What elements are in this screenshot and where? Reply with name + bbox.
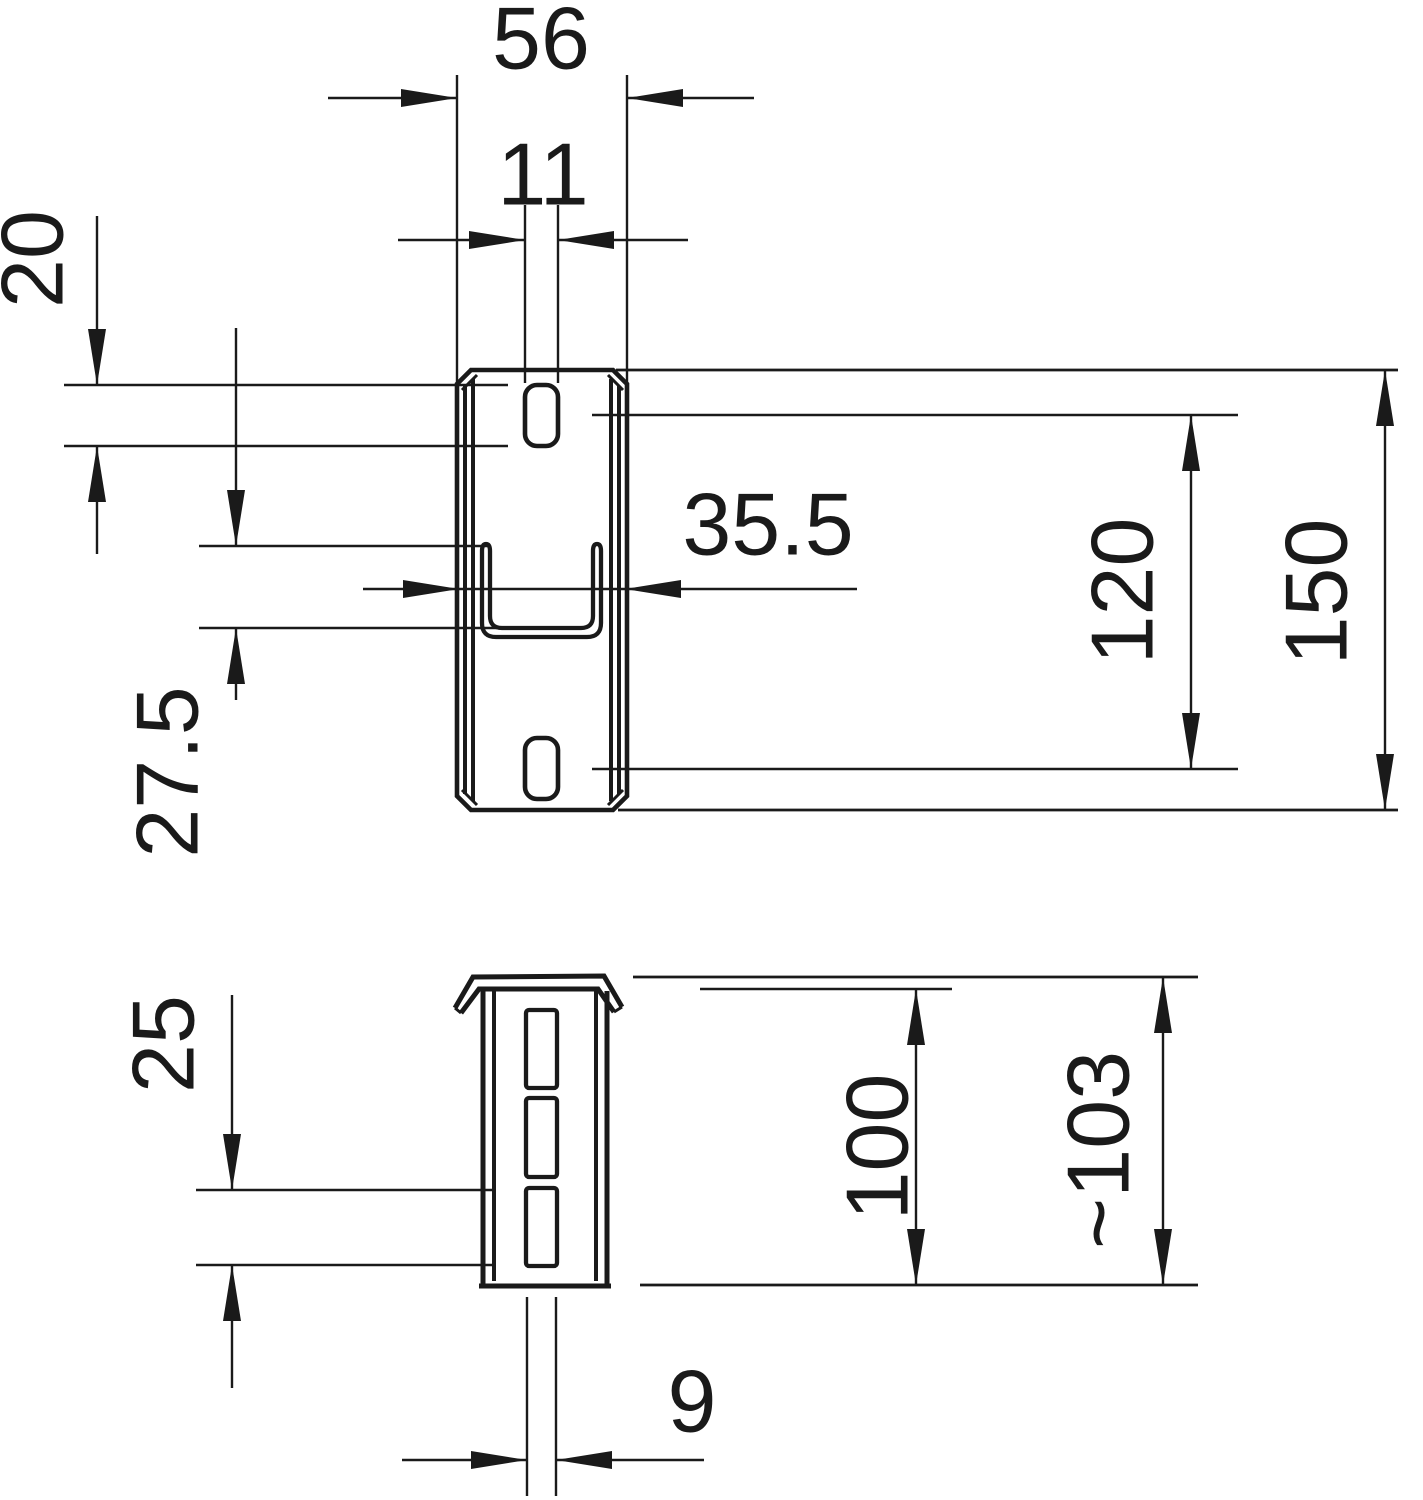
side-body-inner-lines: [494, 991, 596, 1281]
dim-label-100: 100: [828, 1074, 927, 1221]
front-bottom-slot: [525, 738, 558, 799]
dim-slot-pitch: 120: [592, 415, 1238, 769]
dim-label-103: ~103: [1049, 1051, 1148, 1249]
dim-label-20: 20: [0, 210, 82, 308]
side-view: 25 100 ~103 9: [114, 976, 1199, 1496]
dim-label-120: 120: [1073, 518, 1172, 665]
dim-slot-width: 11: [398, 125, 688, 384]
drawing-canvas: 56 11 20 27.5 35.5: [0, 0, 1423, 1500]
side-slot-1: [526, 1010, 557, 1088]
dim-side-slot-width: 9: [402, 1297, 716, 1496]
front-u-slot: [482, 544, 601, 637]
dim-label-150: 150: [1267, 519, 1366, 666]
side-slot-2: [526, 1098, 557, 1177]
dim-slot-length: 20: [0, 210, 508, 554]
dim-body-height: 100: [700, 989, 952, 1285]
dim-label-9: 9: [668, 1352, 717, 1451]
dim-bridge-height: 27.5: [118, 328, 498, 858]
dim-label-11: 11: [497, 125, 588, 224]
dim-label-25: 25: [114, 995, 213, 1093]
dim-label-35-5: 35.5: [682, 475, 853, 574]
side-slot-3: [526, 1188, 557, 1266]
dim-label-56: 56: [492, 0, 590, 88]
side-body-outline: [479, 991, 611, 1286]
front-top-slot: [525, 385, 558, 446]
dim-side-slot-length: 25: [114, 995, 493, 1388]
front-view: 56 11 20 27.5 35.5: [0, 0, 1398, 858]
dim-label-27-5: 27.5: [118, 686, 217, 857]
technical-drawing: 56 11 20 27.5 35.5: [0, 0, 1423, 1500]
